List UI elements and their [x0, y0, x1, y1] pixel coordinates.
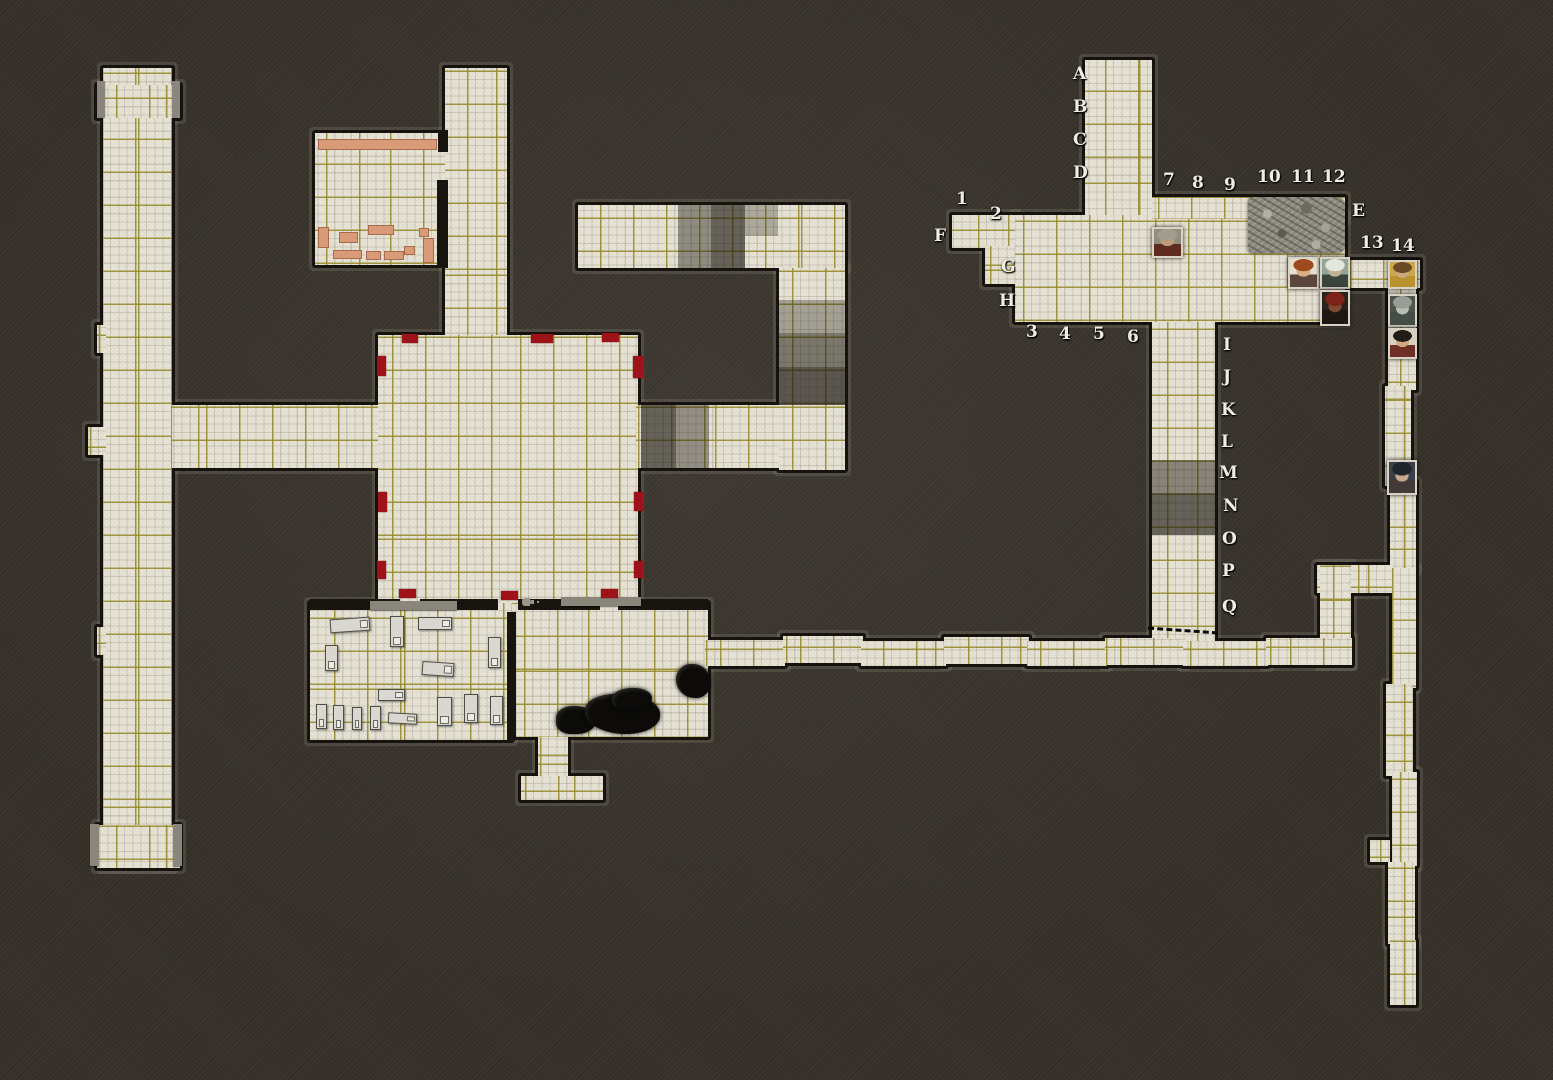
door-marker[interactable]	[602, 333, 619, 342]
shaded-tiles	[779, 367, 845, 405]
bed-pillow	[440, 716, 449, 724]
floor-section	[783, 636, 863, 663]
interior-wall	[437, 180, 448, 268]
table-icon	[384, 251, 404, 260]
floor-section	[97, 825, 180, 868]
door-marker[interactable]	[633, 356, 643, 378]
bed-icon	[333, 705, 344, 730]
floor-section	[1390, 940, 1416, 1005]
bed-icon	[464, 694, 478, 723]
door-marker[interactable]	[402, 334, 418, 343]
shaded-tiles	[779, 333, 845, 367]
bed-pillow	[328, 661, 335, 669]
bed-icon	[325, 645, 338, 671]
grid-label-K: K	[1221, 402, 1236, 419]
bed-icon	[390, 616, 404, 647]
shaded-tiles	[678, 205, 711, 268]
white-bearded-warrior-token[interactable]	[1320, 257, 1350, 289]
floor-section	[97, 85, 180, 118]
bed-pillow	[407, 716, 415, 721]
floor-section	[1392, 568, 1416, 688]
bed-pillow	[491, 658, 498, 666]
grid-label-10: 10	[1257, 169, 1281, 186]
table-icon	[423, 238, 434, 263]
grid-label-I: I	[1223, 337, 1231, 354]
bed-icon	[488, 637, 501, 668]
bed-pillow	[355, 720, 359, 728]
bed-icon	[378, 689, 405, 701]
bed-pillow	[319, 719, 324, 727]
door-key-icon	[522, 598, 530, 606]
bed-icon	[422, 661, 455, 677]
bald-monk-token[interactable]	[1152, 227, 1183, 258]
table-icon	[368, 225, 394, 235]
shaded-tiles	[1152, 460, 1215, 493]
grid-label-4: 4	[1059, 326, 1071, 343]
bed-icon	[370, 706, 381, 730]
bed-pillow	[442, 620, 450, 627]
interior-wall	[438, 130, 448, 152]
grid-label-6: 6	[1127, 329, 1139, 346]
table-icon	[404, 246, 415, 255]
grid-label-A: A	[1073, 66, 1086, 83]
grid-label-8: 8	[1192, 175, 1204, 192]
bed-pillow	[373, 720, 378, 728]
interior-wall	[507, 612, 516, 740]
dark-haired-man-token[interactable]	[1388, 328, 1417, 359]
bed-pillow	[467, 713, 475, 721]
grid-label-O: O	[1222, 531, 1237, 548]
wall-cap	[90, 824, 99, 866]
wall-cap	[172, 81, 180, 117]
grid-label-14: 14	[1391, 238, 1415, 255]
floor-section	[1386, 684, 1413, 776]
wall-cap	[97, 81, 105, 117]
bed-pillow	[395, 692, 403, 698]
grid-label-7: 7	[1163, 172, 1175, 189]
red-haired-man-token[interactable]	[1288, 257, 1319, 289]
red-helmed-warrior-token[interactable]	[1320, 290, 1350, 326]
gold-armored-man-token[interactable]	[1388, 260, 1417, 289]
shaded-tiles	[641, 405, 676, 468]
floor-section	[861, 641, 946, 666]
bed-icon	[352, 707, 362, 730]
grid-label-B: B	[1073, 99, 1087, 116]
door-marker[interactable]	[601, 589, 618, 598]
grid-label-P: P	[1222, 563, 1235, 580]
grid-label-H: H	[999, 293, 1015, 310]
bed-icon	[490, 696, 503, 725]
floor-section	[1085, 60, 1152, 218]
door-marker[interactable]	[378, 492, 387, 512]
floor-section	[172, 405, 378, 468]
bed-pillow	[444, 665, 453, 674]
floor-section	[1370, 840, 1390, 862]
table-icon	[366, 251, 381, 260]
floor-section	[944, 637, 1029, 664]
grid-label-F: F	[934, 228, 946, 245]
grid-label-N: N	[1223, 498, 1239, 515]
shaded-tiles	[676, 405, 709, 468]
table-icon	[333, 250, 362, 259]
shaded-tiles	[1152, 493, 1215, 535]
grid-label-3: 3	[1026, 324, 1038, 341]
bed-pillow	[493, 715, 500, 723]
grid-label-C: C	[1073, 132, 1087, 149]
bed-pillow	[336, 720, 341, 728]
grid-label-E: E	[1352, 203, 1365, 220]
door-marker[interactable]	[399, 589, 416, 598]
table-icon	[339, 232, 358, 243]
floor-section	[538, 737, 568, 779]
door-marker[interactable]	[377, 561, 386, 579]
grid-label-Q: Q	[1222, 599, 1237, 616]
door-marker[interactable]	[634, 492, 643, 511]
table-icon	[419, 228, 429, 237]
floor-section	[97, 627, 106, 655]
grid-label-G: G	[1001, 259, 1016, 276]
floor-section	[445, 68, 507, 338]
door-marker[interactable]	[634, 561, 643, 578]
bed-icon	[316, 704, 327, 729]
door-marker[interactable]	[377, 356, 386, 376]
grid-label-J: J	[1223, 369, 1231, 386]
floor-section	[97, 325, 106, 353]
gray-skulled-warrior-token[interactable]	[1388, 294, 1417, 327]
grid-label-11: 11	[1291, 169, 1315, 186]
grid-label-1: 1	[956, 191, 968, 208]
wall-cap	[561, 597, 641, 606]
floor-section	[378, 335, 638, 603]
floor-section	[1105, 638, 1185, 665]
floor-section	[952, 215, 1015, 248]
vtt-map-canvas[interactable]: ABCDEFGHIJKLMNOPQ1234567891011121314	[0, 0, 1553, 1080]
floor-section	[1388, 862, 1415, 944]
grid-label-13: 13	[1360, 235, 1384, 252]
door-marker[interactable]	[501, 591, 518, 600]
grid-label-M: M	[1219, 465, 1238, 482]
grid-label-5: 5	[1093, 326, 1105, 343]
floor-section	[1392, 772, 1417, 866]
bed-pillow	[393, 637, 401, 645]
floor-section	[88, 427, 106, 455]
grid-label-9: 9	[1224, 177, 1236, 194]
grid-label-12: 12	[1322, 169, 1346, 186]
bed-icon	[437, 697, 452, 726]
bed-icon	[388, 712, 418, 725]
coal-pile-icon	[676, 664, 710, 698]
floor-section	[103, 68, 172, 868]
floor-section	[521, 776, 603, 800]
grid-label-D: D	[1073, 165, 1088, 182]
shaded-tiles	[711, 205, 745, 268]
grid-label-L: L	[1221, 434, 1233, 451]
table-icon	[318, 139, 437, 150]
floor-section	[1266, 638, 1352, 665]
door-marker[interactable]	[531, 334, 553, 343]
floor-section	[1183, 641, 1268, 666]
wall-cap	[370, 601, 457, 610]
wall-cap	[173, 824, 182, 866]
floor-section	[1390, 482, 1416, 570]
shaded-tiles	[745, 205, 778, 236]
floor-section	[1027, 641, 1107, 666]
rubble-pile-icon	[1248, 197, 1345, 253]
floor-section	[705, 640, 785, 666]
table-icon	[318, 227, 329, 248]
grid-label-2: 2	[990, 206, 1002, 223]
hooded-woman-token[interactable]	[1387, 460, 1417, 495]
bed-icon	[418, 617, 452, 630]
bed-icon	[330, 617, 371, 634]
bed-pillow	[360, 620, 369, 629]
shaded-tiles	[779, 300, 845, 333]
